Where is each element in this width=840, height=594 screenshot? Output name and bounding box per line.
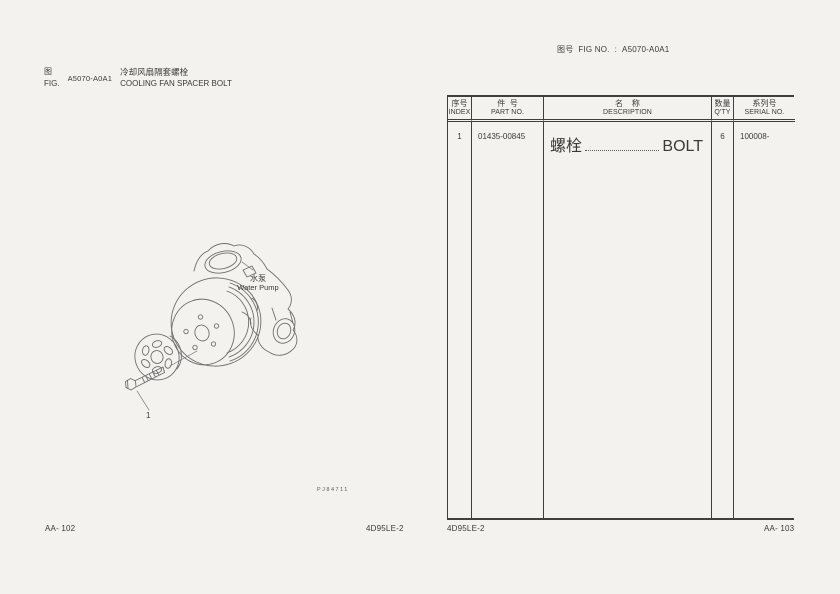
cell-part-no: 01435-00845 — [472, 122, 544, 518]
cell-description: 螺栓 BOLT — [544, 122, 712, 518]
model-number-center: 4D95LE-2 — [366, 524, 404, 533]
pulley-center-hole — [193, 323, 212, 343]
dot-leader — [585, 149, 659, 151]
catalog-page: 图号 FIG NO. : A5070-A0A1 图 FIG. A5070-A0A… — [0, 0, 840, 594]
spacer-hole-2 — [163, 345, 174, 356]
pump-opening-outer — [203, 247, 244, 276]
callout-1-leader — [137, 391, 149, 410]
spacer-center-hole — [149, 349, 164, 365]
page-number-left: AA- 102 — [45, 524, 75, 533]
bolt-tip — [163, 367, 165, 373]
cell-qty: 6 — [712, 122, 734, 518]
bolt-head-facet — [128, 381, 129, 389]
water-pump-label-cn: 水泵 — [228, 274, 288, 283]
bolt-thread-1 — [142, 377, 145, 382]
bolt-thread-4 — [153, 372, 156, 377]
pump-outlet-link-1 — [272, 308, 276, 320]
callout-1: 1 — [146, 411, 150, 420]
spacer-hole-1 — [151, 339, 162, 348]
spacer-hole-5 — [140, 358, 151, 369]
parts-table: 序号 INDEX 件 号 PART NO. 名 称 DESCRIPTION 数量… — [447, 95, 794, 520]
bolt-head — [126, 379, 137, 391]
model-number-under-table: 4D95LE-2 — [447, 524, 485, 533]
pump-rib-2 — [242, 312, 251, 324]
spacer-hole-6 — [142, 345, 150, 356]
pulley-bolt-hole-4 — [193, 345, 197, 349]
page-number-right: AA- 103 — [764, 524, 794, 533]
spacer-outer — [129, 328, 185, 385]
water-pump-label-en: Water Pump — [228, 283, 288, 292]
pulley-bolt-hole-5 — [184, 329, 188, 333]
pulley-face — [163, 290, 244, 373]
col-header-part-no: 件 号 PART NO. — [472, 97, 544, 122]
drawing-number: PJ84711 — [317, 487, 349, 493]
pump-outlet-bore — [275, 321, 293, 341]
pulley-bolt-hole-3 — [211, 342, 215, 346]
pulley-bolt-hole-2 — [214, 324, 218, 328]
col-header-index: 序号 INDEX — [448, 97, 472, 122]
cell-serial-no: 100008- — [734, 122, 795, 518]
pulley-bolt-hole-1 — [198, 315, 202, 319]
bolt-thread-2 — [146, 376, 149, 381]
description-en: BOLT — [662, 138, 703, 156]
col-header-description: 名 称 DESCRIPTION — [544, 97, 712, 122]
spacer-hole-3 — [164, 358, 172, 369]
description-cn: 螺栓 — [550, 132, 582, 156]
col-header-serial-no: 系列号 SERIAL NO. — [734, 97, 795, 122]
water-pump-label: 水泵 Water Pump — [228, 274, 288, 292]
cell-index: 1 — [448, 122, 472, 518]
pulley-groove-3 — [227, 291, 249, 353]
col-header-qty: 数量 Q'TY — [712, 97, 734, 122]
